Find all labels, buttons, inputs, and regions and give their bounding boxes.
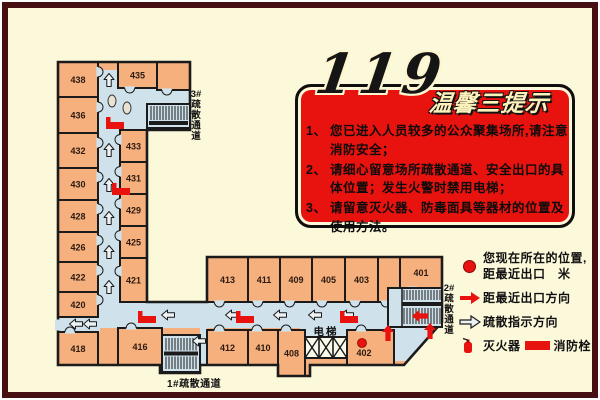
stair-landing (149, 121, 188, 125)
room-number: 418 (70, 344, 85, 354)
extinguisher-icon (459, 337, 483, 354)
channel-label: 疏 (191, 99, 201, 111)
room (157, 62, 190, 90)
tip-text: 请留意灭火器、防毒面具等器材的位置及使用方法。 (330, 199, 568, 237)
stair-landing (164, 352, 198, 356)
hydrant-marker (142, 316, 157, 323)
safety-tip: 2、 请细心留意场所疏散通道、安全出口的具体位置；发生火警时禁用电梯； (306, 161, 568, 199)
corridor (200, 328, 207, 365)
red-arrow-icon (459, 291, 483, 305)
channel-label: 道 (191, 130, 201, 142)
channel-label: 2# (444, 283, 455, 294)
tip-number: 2、 (306, 161, 330, 199)
room-number: 420 (70, 300, 85, 310)
room-number: 405 (321, 275, 336, 285)
sign-title: 温馨三提示 (428, 92, 550, 115)
legend-extinguisher-label: 灭火器 (483, 337, 521, 354)
legend: 您现在所在的位置, 距最近出口 米 距最近出口方向 疏散指示方向 灭火器 消防栓 (459, 250, 595, 361)
room-number: 422 (70, 273, 85, 283)
channel-label: 通 (191, 121, 201, 132)
room-number: 421 (126, 276, 141, 286)
safety-tip: 1、 您已进入人员较多的公众聚集场所,请注意消防安全； (306, 122, 568, 160)
safety-tips-list: 1、 您已进入人员较多的公众聚集场所,请注意消防安全； 2、 请细心留意场所疏散… (306, 122, 568, 238)
channel-label: 道 (444, 324, 454, 336)
legend-equipment: 灭火器 消防栓 (459, 337, 595, 354)
room-number: 433 (126, 142, 141, 152)
legend-nearest-exit-label: 距最近出口方向 (483, 289, 571, 306)
washroom-fixture (108, 95, 116, 107)
legend-evacuation-direction: 疏散指示方向 (459, 313, 595, 330)
you-are-here-dot (358, 339, 367, 348)
room-number: 413 (220, 275, 235, 285)
channel-label: 通 (444, 315, 454, 326)
location-dot-icon (459, 260, 483, 273)
room-number: 410 (255, 343, 270, 353)
safety-tip: 3、 请留意灭火器、防毒面具等器材的位置及使用方法。 (306, 199, 568, 237)
elevator-label: 电梯 (314, 325, 339, 338)
room-number: 430 (70, 180, 85, 190)
legend-evacuation-direction-label: 疏散指示方向 (483, 313, 558, 330)
room-number: 431 (126, 174, 141, 184)
channel-label: 散 (191, 109, 201, 121)
tip-number: 1、 (306, 122, 330, 160)
room-number: 416 (132, 342, 147, 352)
room-number: 426 (70, 243, 85, 253)
room-number: 403 (354, 275, 369, 285)
outline-arrow-icon (459, 315, 483, 329)
washroom-fixture (123, 102, 131, 114)
tip-text: 请细心留意场所疏散通道、安全出口的具体位置；发生火警时禁用电梯； (330, 161, 568, 199)
hydrant-marker (116, 188, 131, 195)
room-number: 409 (288, 275, 303, 285)
channel-label: 1#疏散通道 (167, 377, 221, 390)
channel-label: 3# (191, 89, 202, 100)
tip-number: 3、 (306, 199, 330, 237)
legend-current-location-line1: 您现在所在的位置, (483, 250, 587, 266)
legend-nearest-exit: 距最近出口方向 (459, 289, 595, 306)
exit-opening (55, 320, 61, 331)
room-number: 412 (220, 343, 235, 353)
room-number: 425 (126, 238, 141, 248)
room-number: 436 (70, 111, 85, 121)
room-number: 429 (126, 206, 141, 216)
stair-landing (402, 302, 441, 306)
hydrant-marker (110, 122, 125, 129)
room-number: 408 (284, 349, 299, 359)
hydrant-swatch-icon (525, 341, 550, 350)
hydrant-marker (240, 316, 255, 323)
room-number: 411 (257, 275, 272, 285)
room-number: 435 (130, 71, 145, 81)
room-number: 432 (70, 146, 85, 156)
legend-current-location-line2: 距最近出口 米 (483, 266, 587, 282)
channel-label: 疏 (444, 293, 454, 305)
legend-hydrant-label: 消防栓 (554, 337, 592, 354)
room-number: 401 (413, 268, 428, 278)
hydrant-marker (344, 316, 359, 323)
room-number: 428 (70, 212, 85, 222)
tip-text: 您已进入人员较多的公众聚集场所,请注意消防安全； (330, 122, 568, 160)
room-number: 438 (70, 75, 85, 85)
channel-label: 散 (444, 303, 454, 315)
room-number: 402 (356, 348, 371, 358)
legend-current-location: 您现在所在的位置, 距最近出口 米 (459, 250, 595, 282)
